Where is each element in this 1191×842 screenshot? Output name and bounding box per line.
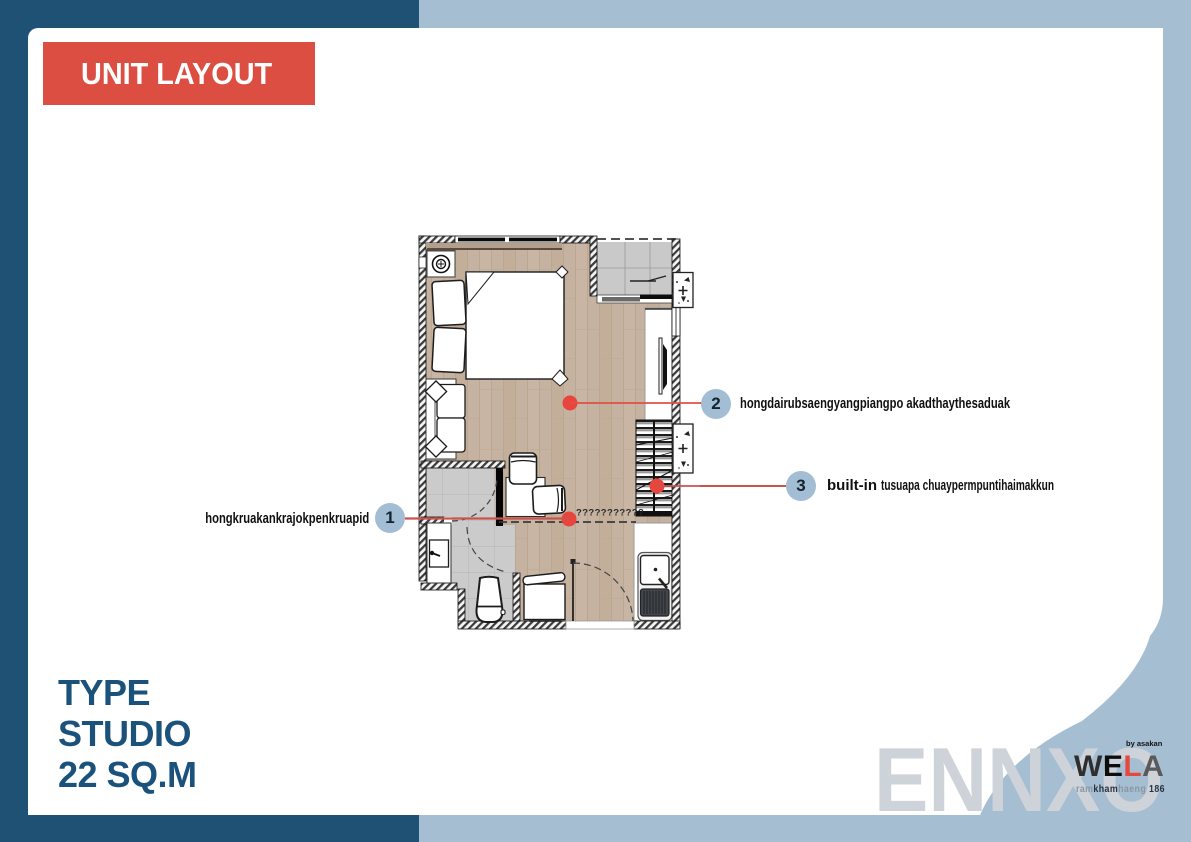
svg-text:???????????: ??????????? — [576, 508, 644, 519]
